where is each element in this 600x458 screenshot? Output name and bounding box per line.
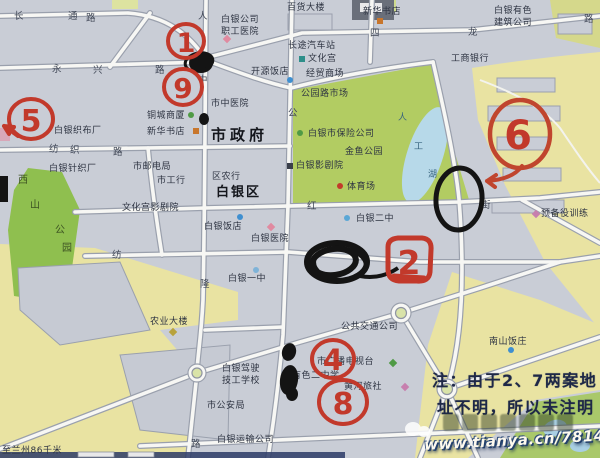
- black-dot-small: [199, 113, 209, 125]
- black-bar-left-edge: [0, 176, 8, 202]
- black-scribble-center: [307, 243, 398, 283]
- digit-8: 8: [333, 387, 354, 422]
- black-blob-bottom-1: [280, 341, 298, 362]
- digit-9: 9: [173, 72, 192, 105]
- note-line-1: 注：由于2、7两案地: [432, 367, 597, 391]
- red-digits: 1 9 5 6 2 4 8: [21, 28, 532, 422]
- digit-2: 2: [398, 243, 421, 282]
- digit-5: 5: [21, 104, 42, 139]
- black-marks: [0, 50, 484, 401]
- black-oval-right: [434, 166, 484, 231]
- digit-1: 1: [177, 28, 196, 59]
- city-map: 百货大楼 新华书店 白银有色 建筑公司 白银公司 职工医院 长途汽车站 文化宫 …: [0, 0, 600, 458]
- digit-6: 6: [504, 113, 532, 159]
- digit-4: 4: [323, 343, 343, 377]
- red-arrow-6: [487, 166, 522, 187]
